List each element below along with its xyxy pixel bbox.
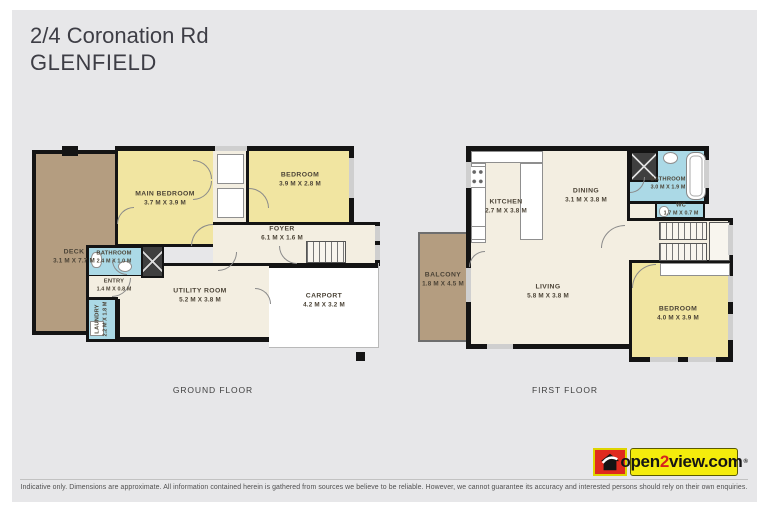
floor-plan-page: 2/4 Coronation Rd GLENFIELD DECK 3.1 M X… (0, 0, 768, 512)
window (375, 245, 380, 260)
window (375, 226, 380, 241)
window (650, 357, 678, 362)
logo-text-view: view.com (669, 452, 743, 472)
gf-laundry-label: LAUNDRY 2.2 M X 1.8 M (95, 302, 110, 337)
ff-bedroom-closet (660, 263, 730, 276)
gf-foyer-label: FOYER 6.1 M X 1.6 M (261, 226, 303, 243)
gf-deck-post (62, 146, 78, 156)
first-floor-caption: FIRST FLOOR (505, 385, 625, 395)
window (728, 225, 733, 255)
logo-registered-mark: ® (743, 459, 747, 465)
gf-carport-edge-bottom (269, 347, 379, 348)
gf-bedroom-label: BEDROOM 3.9 M X 2.8 M (279, 172, 321, 189)
ff-balcony-label: BALCONY 1.8 M X 4.5 M (422, 272, 464, 289)
gf-carport-edge-right (378, 263, 379, 348)
logo-text-2: 2 (660, 452, 669, 472)
gf-carport-post (356, 352, 365, 361)
window (688, 357, 716, 362)
ff-bedroom-label: BEDROOM 4.0 M X 3.9 M (657, 306, 699, 323)
gf-staircase (306, 241, 346, 263)
ground-floor-caption: GROUND FLOOR (148, 385, 278, 395)
address-line: 2/4 Coronation Rd (30, 22, 209, 49)
ff-kitchen-sink (471, 226, 486, 240)
suburb-line: GLENFIELD (30, 49, 209, 76)
gf-bathroom-label: BATHROOM 2.4 M X 1.0 M (96, 251, 131, 266)
ff-staircase-lower (659, 243, 707, 261)
ff-staircase-upper (659, 222, 707, 240)
window (466, 162, 471, 188)
ff-dining-label: DINING 3.1 M X 3.8 M (565, 188, 607, 205)
ff-bathroom-label: BATHROOM 3.0 M X 1.9 M (650, 177, 685, 192)
open2view-logo-wordmark: open2view.com® (630, 448, 738, 476)
ff-wc-label: WC 1.7 M X 0.7 M (664, 203, 699, 218)
ff-kitchen-label: KITCHEN 2.7 M X 3.8 M (485, 199, 527, 216)
gf-main-bedroom-label: MAIN BEDROOM 3.7 M X 3.9 M (135, 191, 195, 208)
ff-kitchen-counter-top (471, 151, 543, 163)
gf-shower (141, 245, 164, 278)
gf-entry-label: ENTRY 1.4 M X 0.8 M (97, 279, 132, 294)
gf-hall-closet-2 (217, 188, 244, 218)
ff-stair-landing (709, 222, 730, 261)
page-title: 2/4 Coronation Rd GLENFIELD (30, 22, 209, 76)
window (728, 314, 733, 340)
ff-bathtub (686, 152, 706, 200)
window (215, 146, 247, 151)
gf-deck-label: DECK 3.1 M X 7.7 M (53, 249, 95, 266)
ff-living-label: LIVING 5.8 M X 3.8 M (527, 284, 569, 301)
window (487, 344, 513, 349)
open2view-house-icon (599, 451, 621, 473)
logo-text-open: open (620, 452, 659, 472)
balcony-door-window (466, 268, 471, 302)
gf-carport-label: CARPORT 4.2 M X 3.2 M (303, 293, 345, 310)
ff-stove (469, 166, 486, 188)
window (704, 160, 709, 188)
window (349, 158, 354, 198)
footer-divider (20, 479, 748, 480)
gf-hall-closet-1 (217, 154, 244, 184)
gf-utility-label: UTILITY ROOM 5.2 M X 3.8 M (173, 288, 226, 305)
ff-basin (663, 152, 678, 164)
disclaimer-text: Indicative only. Dimensions are approxim… (0, 484, 768, 491)
window (728, 276, 733, 302)
